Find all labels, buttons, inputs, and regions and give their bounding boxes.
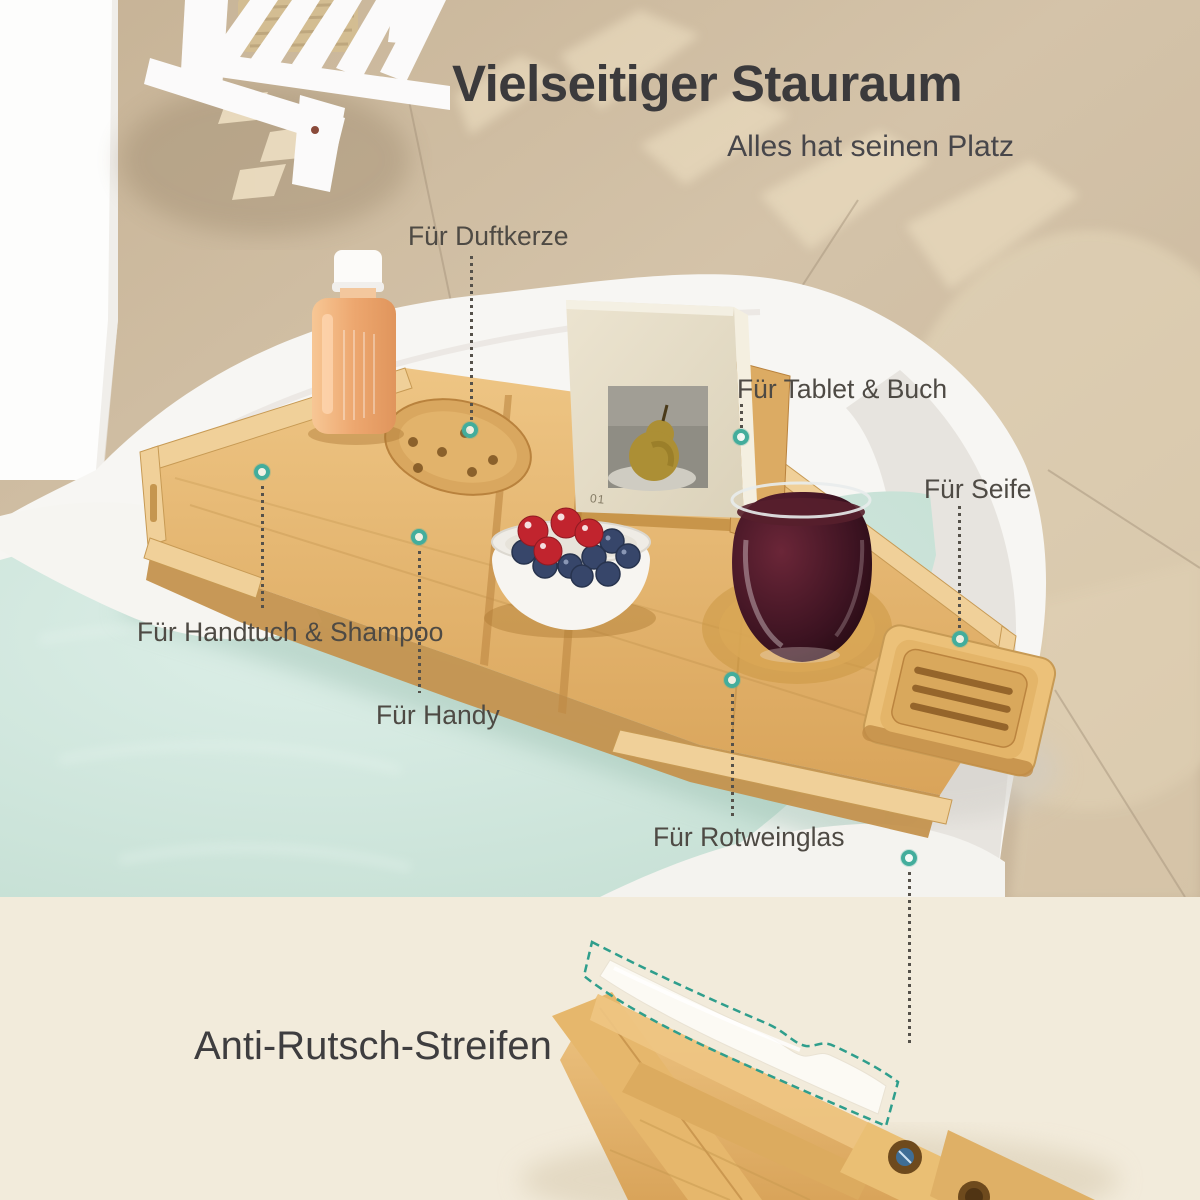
anti-slip-closeup-section (0, 897, 1200, 1200)
product-image-page: Vielseitiger Stauraum Alles hat seinen P… (0, 0, 1200, 1200)
pear-cover-image (608, 386, 708, 491)
book (566, 300, 758, 522)
handle-slot-left (150, 484, 157, 522)
white-side-panel (0, 0, 118, 480)
screw-hole (888, 1140, 922, 1174)
product-photo (0, 0, 1200, 1200)
